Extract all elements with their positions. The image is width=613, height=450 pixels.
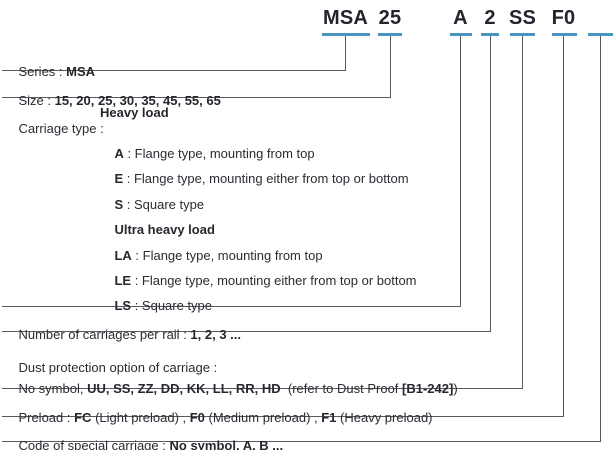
ordering-code-diagram: MSA 25 A 2 SS F0 Series : MSA Size : 15,… bbox=[0, 0, 613, 450]
preload-code-f1: F1 bbox=[321, 410, 336, 425]
carriage-count-label: Number of carriages per rail bbox=[18, 327, 179, 342]
carriage-count-value: 1, 2, 3 ... bbox=[190, 327, 241, 342]
connector-preload bbox=[563, 36, 564, 417]
dust-options-post: ) bbox=[453, 381, 457, 396]
special-carriage-label: Code of special carriage bbox=[18, 438, 158, 450]
carriage-count-colon: : bbox=[180, 327, 191, 342]
connector-dust-protection bbox=[522, 36, 523, 390]
connector-series bbox=[345, 36, 346, 71]
connector-carriage-type bbox=[460, 36, 461, 308]
connector-special-carriage bbox=[600, 36, 601, 443]
special-carriage-value: No symbol, A, B ... bbox=[170, 438, 284, 450]
code-size: 25 bbox=[358, 7, 422, 30]
connector-size bbox=[390, 36, 391, 99]
special-carriage-colon: : bbox=[159, 438, 170, 450]
row-special-carriage: Code of special carriage : No symbol, A,… bbox=[4, 422, 283, 450]
connector-carriage-count bbox=[490, 36, 491, 333]
carriage-type-value: Heavy load bbox=[100, 105, 169, 121]
label-line-carriage-type bbox=[2, 306, 461, 307]
preload-f1-desc: (Heavy preload) bbox=[336, 410, 432, 425]
code-preload: F0 bbox=[532, 7, 596, 30]
carriage-type-label: Carriage type bbox=[18, 121, 96, 136]
